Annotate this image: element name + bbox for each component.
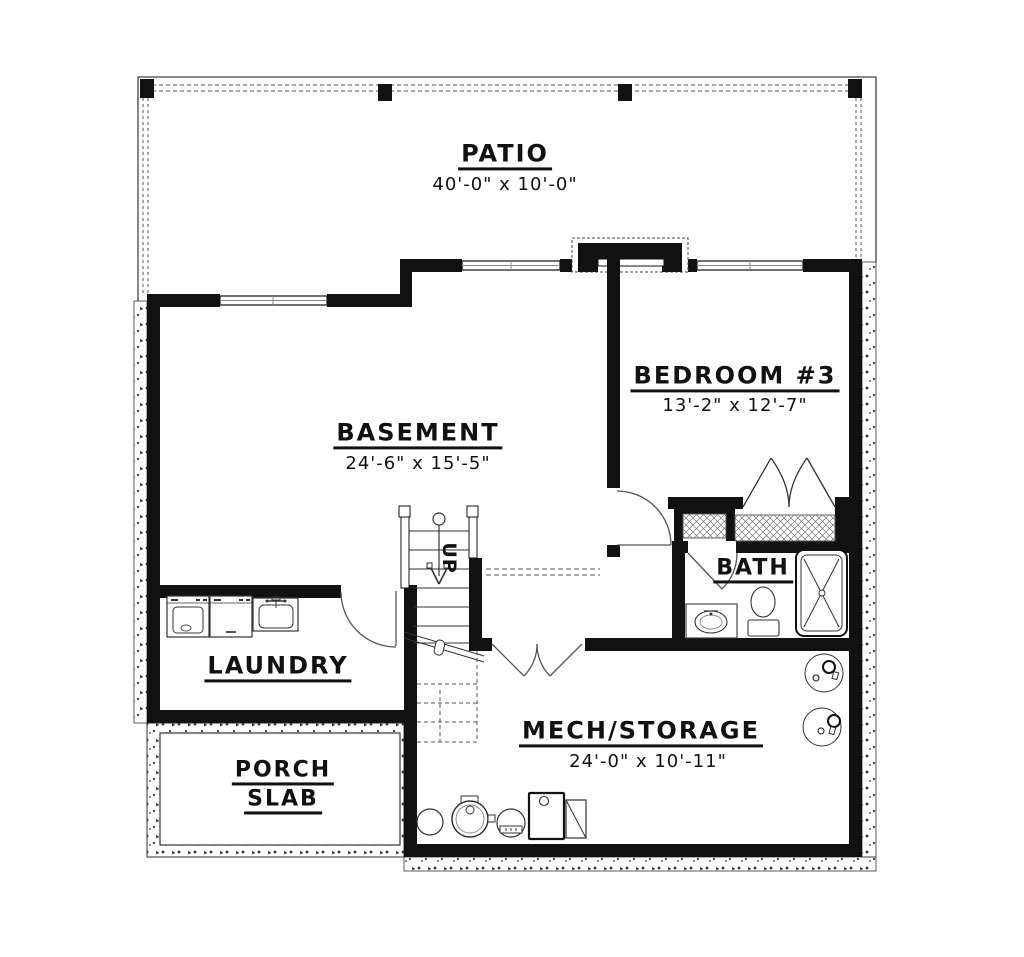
- water-heater-icon: [452, 796, 495, 837]
- window-well-icon: [572, 238, 688, 272]
- mech-storage-dimensions: 24'-0" x 10'-11": [569, 752, 727, 772]
- sump-pit-icon: [805, 654, 843, 692]
- dryer-icon: [210, 596, 252, 637]
- mech-storage-label: MECH/STORAGE: [519, 718, 763, 747]
- bedroom-window-right-icon: [697, 259, 803, 272]
- furnace-icon: [529, 793, 564, 839]
- laundry-label: LAUNDRY: [204, 653, 351, 682]
- bedroom-label: BEDROOM #3: [631, 363, 840, 392]
- basement-dimensions: 24'-6" x 15'-5": [345, 454, 490, 474]
- pressure-tank-icon: [417, 809, 443, 835]
- bath-label: BATH: [713, 556, 793, 583]
- toilet-icon: [748, 587, 779, 636]
- window-icons: [220, 259, 803, 307]
- shower-icon: [796, 550, 847, 636]
- laundry-fixtures: [167, 596, 298, 637]
- dashed-beam-lines: [486, 569, 600, 575]
- coil-unit-icon: [566, 800, 586, 838]
- porch-label-line1: PORCH: [232, 758, 334, 785]
- closet-shelf-hatch: [683, 514, 835, 541]
- patio-label: PATIO: [458, 141, 552, 170]
- patio-post-icons: [140, 79, 862, 101]
- patio-dimensions: 40'-0" x 10'-0": [432, 175, 577, 195]
- laundry-door-icon: [341, 591, 396, 647]
- vanity-sink-icon: [686, 604, 737, 638]
- laundry-sink-icon: [253, 597, 298, 631]
- stair-direction-label: UP: [438, 542, 460, 573]
- stair-dashed-continuation: [417, 651, 477, 742]
- porch-label-line2: SLAB: [244, 787, 322, 814]
- washer-icon: [167, 596, 209, 637]
- floor-drain-icon: [803, 708, 841, 746]
- water-softener-icon: [497, 809, 525, 837]
- basement-label: BASEMENT: [333, 420, 502, 449]
- bedroom-dimensions: 13'-2" x 12'-7": [662, 396, 807, 416]
- bedroom-door-icon: [617, 491, 671, 545]
- mech-double-door-icon: [492, 644, 582, 676]
- basement-window-icon: [220, 294, 327, 307]
- bedroom-window-left-icon: [462, 259, 560, 272]
- closet-bifold-door-icon: [743, 458, 835, 507]
- floor-plan: PATIO 40'-0" x 10'-0" BASEMENT 24'-6" x …: [0, 0, 1024, 957]
